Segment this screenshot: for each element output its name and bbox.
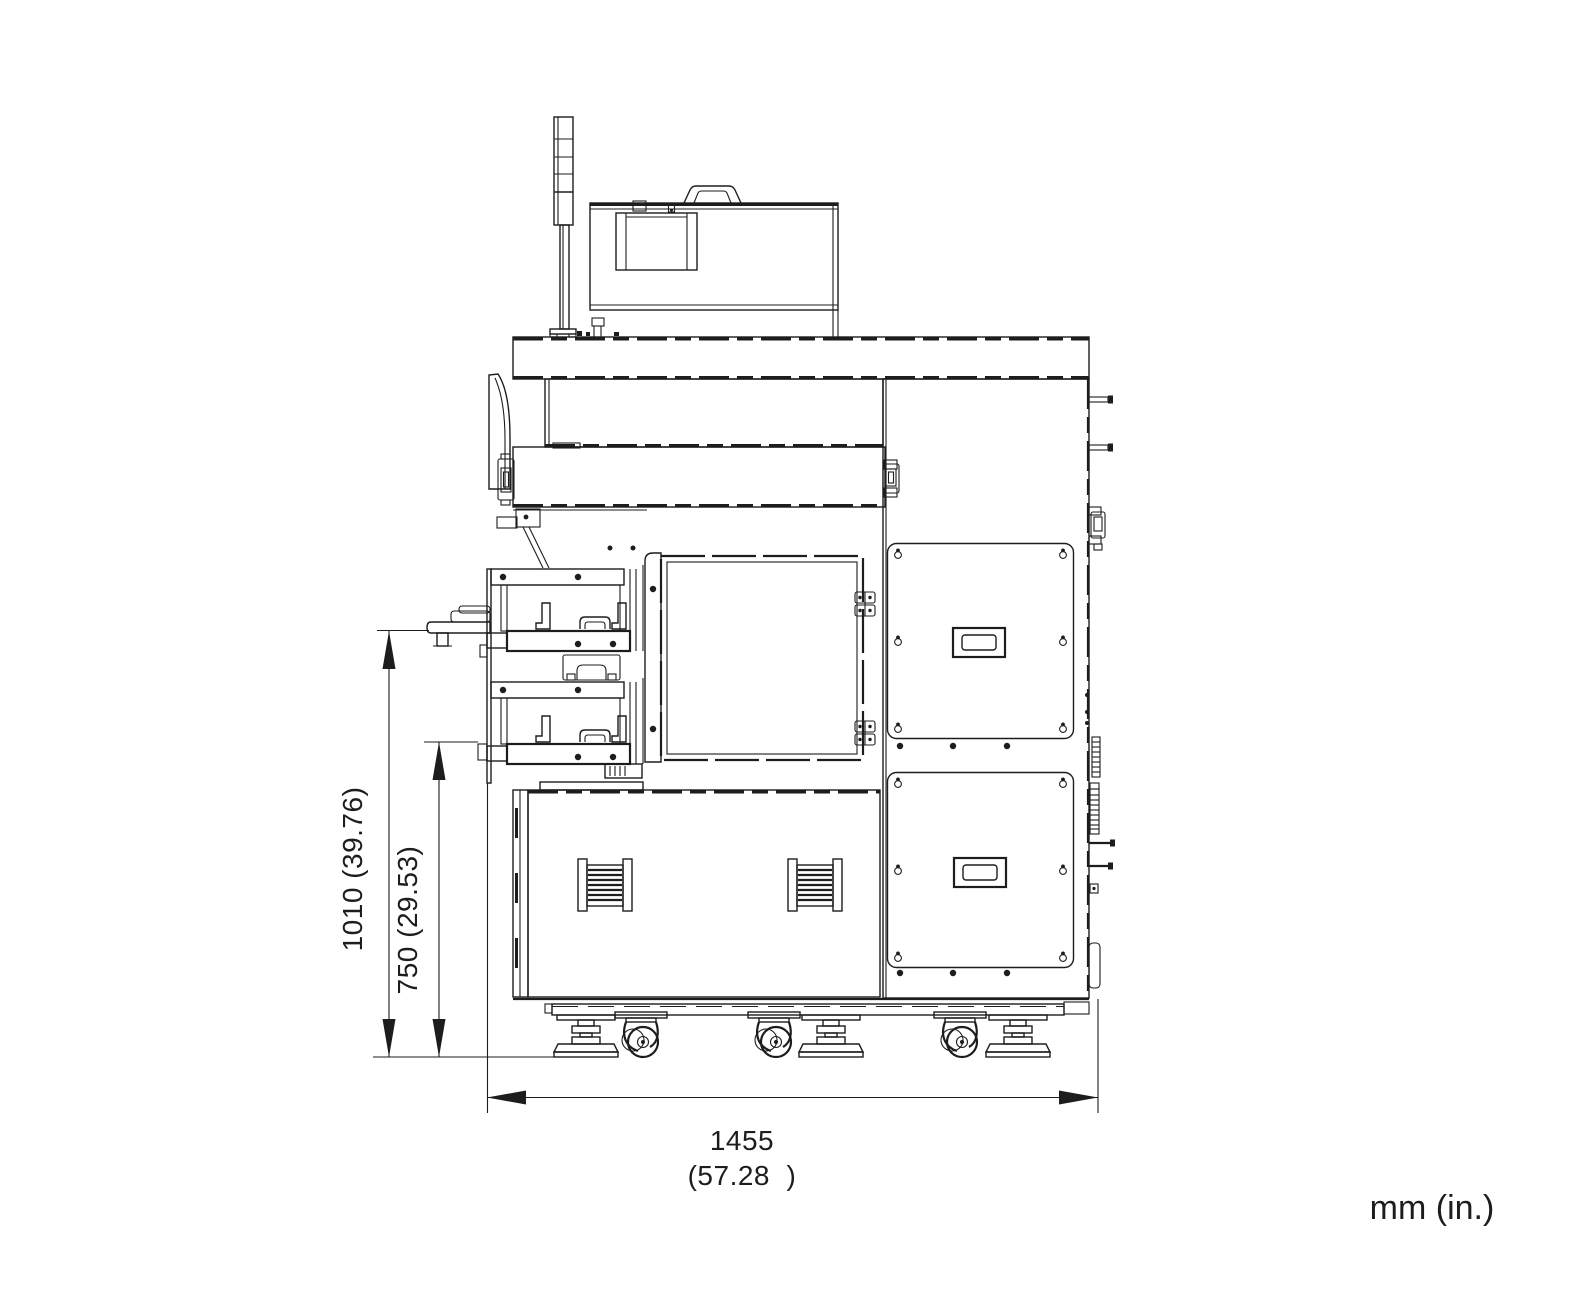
machine-front-view-drawing: 1010 (39.76) 750 (29.53) 1455 (57.28 ) m… <box>0 0 1576 1301</box>
arrowhead-up <box>433 742 446 780</box>
arrowhead-left <box>487 1091 526 1105</box>
tray-center-bracket <box>563 655 620 680</box>
units-label: mm (in.) <box>1370 1189 1495 1227</box>
tray-module-upper <box>487 565 643 651</box>
dimensional-drawing-page: 1010 (39.76) 750 (29.53) 1455 (57.28 ) m… <box>0 0 1576 1301</box>
arrowhead-down <box>383 1019 396 1057</box>
display-panel <box>616 213 697 270</box>
right-panel-upper <box>888 544 1074 739</box>
right-panel-lower <box>888 773 1074 968</box>
arrowhead-right <box>1059 1091 1098 1105</box>
terminal-strip-lower <box>1090 789 1099 834</box>
left-side-flap <box>489 374 549 568</box>
center-door <box>645 553 875 762</box>
dim-label-overall-height: 1010 (39.76) <box>337 787 368 952</box>
dim-overall-width: 1455 (57.28 ) <box>487 783 1098 1191</box>
side-table-arm <box>427 606 490 646</box>
base-frame <box>513 999 1089 1015</box>
leveling-foot-right <box>986 1015 1050 1057</box>
signal-tower-lamp-stack <box>554 117 573 225</box>
vent-grille-right <box>788 859 842 911</box>
dim-label-width-in: (57.28 ) <box>688 1160 797 1191</box>
panel-handle-lower <box>954 858 1006 887</box>
lower-cabinet <box>513 790 880 997</box>
vent-grille-left <box>578 859 632 911</box>
carry-handle <box>684 186 741 203</box>
signal-tower <box>550 117 576 337</box>
upper-housing-bands <box>513 379 899 551</box>
machine-top-cover <box>513 331 1089 379</box>
panel-handle-upper <box>953 628 1005 657</box>
tray-lower-mount <box>540 764 643 790</box>
signal-tower-pole <box>560 225 569 329</box>
dim-label-table-height: 750 (29.53) <box>392 846 423 995</box>
arrowhead-down <box>433 1019 446 1057</box>
signal-tower-base <box>550 329 576 334</box>
caster-wheel-right <box>934 1012 986 1057</box>
tray-module-lower <box>487 678 643 764</box>
leveling-foot-center <box>799 1015 863 1057</box>
door-hinge-upper <box>855 592 875 616</box>
arrowhead-up <box>383 631 396 669</box>
dim-table-height: 750 (29.53) <box>392 742 478 1057</box>
caster-wheel-left <box>615 1012 667 1057</box>
door-hinge-lower <box>855 721 875 745</box>
dim-label-width-mm: 1455 <box>710 1125 774 1156</box>
caster-wheel-center <box>748 1012 800 1057</box>
right-cabinet <box>883 379 1115 998</box>
flap-latch <box>498 454 514 505</box>
leveling-foot-left <box>554 1015 618 1057</box>
top-control-box <box>590 186 838 337</box>
